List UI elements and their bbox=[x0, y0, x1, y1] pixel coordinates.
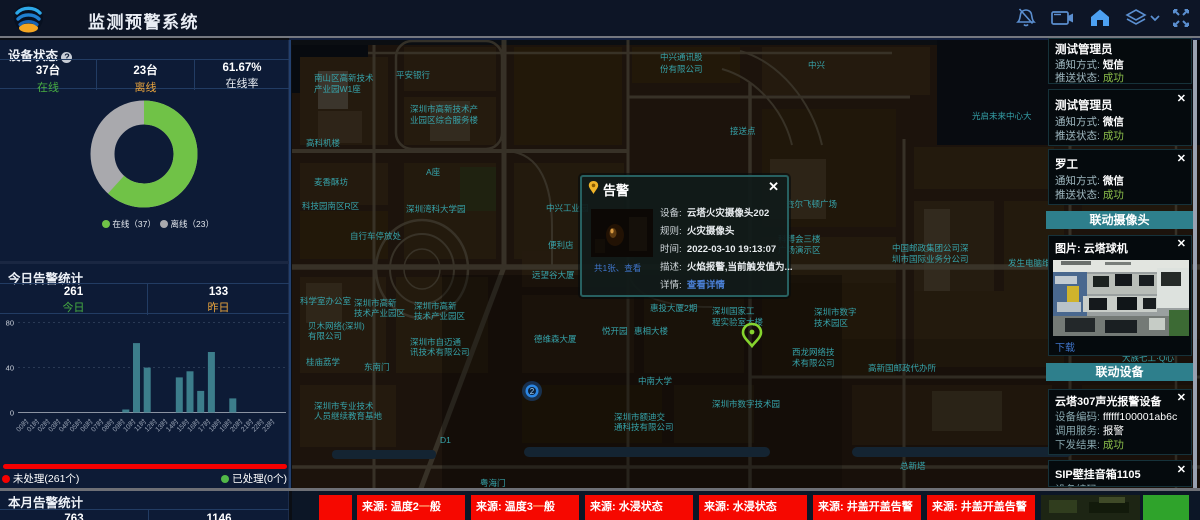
svg-text:40: 40 bbox=[6, 363, 14, 372]
svg-text:麦香酥坊: 麦香酥坊 bbox=[314, 177, 349, 187]
svg-text:惠相大楼: 惠相大楼 bbox=[634, 326, 669, 336]
svg-text:技术产业园区: 技术产业园区 bbox=[414, 311, 466, 321]
svg-text:惠投大厦2期: 惠投大厦2期 bbox=[650, 303, 697, 313]
svg-text:粤海门: 粤海门 bbox=[480, 478, 506, 488]
svg-text:远望谷大厦: 远望谷大厦 bbox=[532, 270, 575, 280]
svg-text:有限公司: 有限公司 bbox=[308, 331, 342, 341]
svg-text:贝木网络(深圳): 贝木网络(深圳) bbox=[308, 321, 365, 331]
svg-text:2: 2 bbox=[530, 387, 535, 396]
svg-text:圳市国际业务分公司: 圳市国际业务分公司 bbox=[892, 254, 969, 264]
svg-text:中南大学: 中南大学 bbox=[638, 376, 673, 386]
svg-text:80: 80 bbox=[6, 318, 14, 327]
svg-text:科学室办公室: 科学室办公室 bbox=[300, 296, 352, 306]
svg-text:中兴通讯股: 中兴通讯股 bbox=[660, 52, 703, 62]
svg-text:讯技术有限公司: 讯技术有限公司 bbox=[410, 347, 470, 357]
svg-text:中兴: 中兴 bbox=[808, 60, 826, 70]
svg-text:东南门: 东南门 bbox=[364, 362, 390, 372]
svg-text:高科机楼: 高科机楼 bbox=[306, 138, 341, 148]
svg-text:平安银行: 平安银行 bbox=[396, 70, 431, 80]
svg-text:科技园南区R区: 科技园南区R区 bbox=[302, 201, 360, 211]
svg-text:A座: A座 bbox=[426, 167, 441, 177]
svg-text:深圳国家工: 深圳国家工 bbox=[712, 306, 755, 316]
svg-text:南山区高新技术: 南山区高新技术 bbox=[314, 73, 374, 83]
svg-text:技术产业园区: 技术产业园区 bbox=[354, 308, 406, 318]
svg-text:深圳市高新: 深圳市高新 bbox=[354, 298, 397, 308]
svg-text:术有限公司: 术有限公司 bbox=[792, 358, 835, 368]
svg-text:深圳市自迈通: 深圳市自迈通 bbox=[410, 337, 462, 347]
svg-text:高新国邮政代办所: 高新国邮政代办所 bbox=[868, 363, 937, 373]
svg-text:自行车停放处: 自行车停放处 bbox=[350, 231, 402, 241]
svg-text:技术园区: 技术园区 bbox=[814, 318, 849, 328]
svg-text:通科技有限公司: 通科技有限公司 bbox=[614, 422, 674, 432]
svg-text:0: 0 bbox=[10, 408, 14, 417]
svg-text:便利店: 便利店 bbox=[548, 240, 574, 250]
svg-text:光启未来中心大: 光启未来中心大 bbox=[972, 111, 1032, 121]
svg-text:深圳市额迪交: 深圳市额迪交 bbox=[614, 412, 666, 422]
svg-text:西龙网络技: 西龙网络技 bbox=[792, 347, 835, 357]
svg-text:业园区综合服务楼: 业园区综合服务楼 bbox=[410, 115, 479, 125]
svg-text:深圳市数字技术园: 深圳市数字技术园 bbox=[712, 399, 780, 409]
svg-text:深圳市数字: 深圳市数字 bbox=[814, 307, 857, 317]
svg-text:深圳市高新: 深圳市高新 bbox=[414, 301, 457, 311]
svg-text:桂庙荔学: 桂庙荔学 bbox=[306, 357, 341, 367]
svg-text:悦开园: 悦开园 bbox=[602, 326, 628, 336]
svg-text:深圳湾科大学园: 深圳湾科大学园 bbox=[406, 204, 466, 214]
svg-text:D1: D1 bbox=[440, 435, 451, 445]
svg-text:产业园W1座: 产业园W1座 bbox=[314, 84, 361, 94]
svg-text:查尔飞顿广场: 查尔飞顿广场 bbox=[786, 199, 837, 209]
svg-text:份有限公司: 份有限公司 bbox=[660, 64, 703, 74]
svg-text:接送点: 接送点 bbox=[730, 126, 756, 136]
svg-text:中国邮政集团公司深: 中国邮政集团公司深 bbox=[892, 243, 969, 253]
svg-text:人员继续教育基地: 人员继续教育基地 bbox=[314, 411, 383, 421]
svg-text:深圳市专业技术: 深圳市专业技术 bbox=[314, 401, 374, 411]
svg-text:德维森大厦: 德维森大厦 bbox=[534, 334, 577, 344]
svg-text:深圳市高新技术产: 深圳市高新技术产 bbox=[410, 104, 478, 114]
svg-text:总新塔: 总新塔 bbox=[900, 461, 926, 471]
